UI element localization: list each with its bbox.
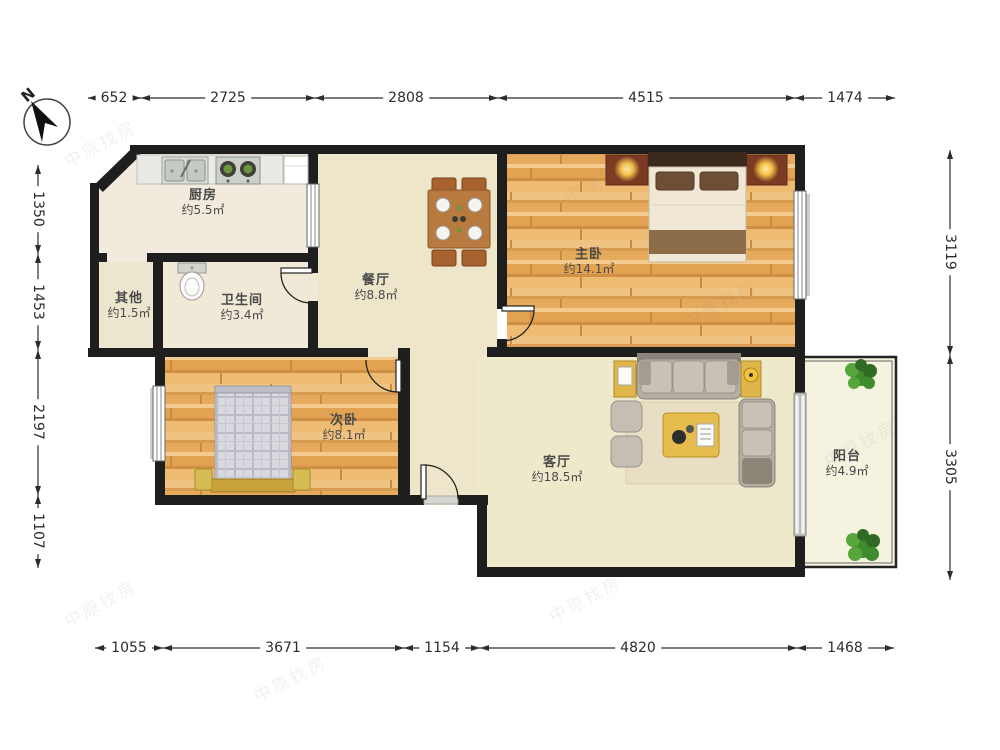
armchair (611, 401, 642, 432)
side-table-left (614, 361, 636, 397)
floorplan-page: N 厨房 约5.5㎡ 其他 约1.5㎡ 卫生间 约3.4㎡ 餐厅 约8.8㎡ 主… (0, 0, 1000, 750)
kitchen-counter (137, 155, 308, 184)
bedside-stool (195, 469, 212, 490)
sofa (637, 353, 741, 399)
armchair (611, 436, 642, 467)
balcony-sliding-door (794, 393, 806, 536)
living-furniture (611, 353, 775, 487)
chaise-sofa (739, 399, 775, 487)
lamp-icon (753, 156, 779, 182)
stove-icon (216, 157, 260, 184)
coffee-table (663, 413, 719, 457)
window-second-bedroom (150, 386, 165, 461)
compass-icon (24, 99, 70, 145)
fridge-icon (284, 156, 308, 184)
side-table-right (741, 361, 761, 397)
window-kitchen-pass (307, 184, 319, 247)
floorplan-canvas (0, 0, 1000, 750)
bedside-stool (293, 469, 310, 490)
sink-icon (162, 157, 208, 184)
lamp-icon (614, 156, 640, 182)
toilet-icon (178, 263, 206, 300)
window-master (794, 191, 810, 299)
